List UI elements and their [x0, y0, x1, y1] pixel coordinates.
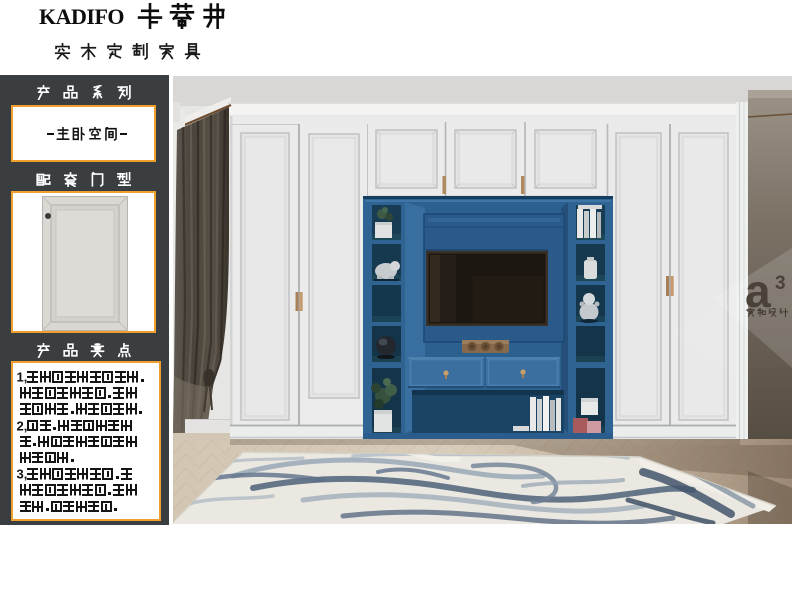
svg-text:3: 3 [775, 273, 786, 294]
